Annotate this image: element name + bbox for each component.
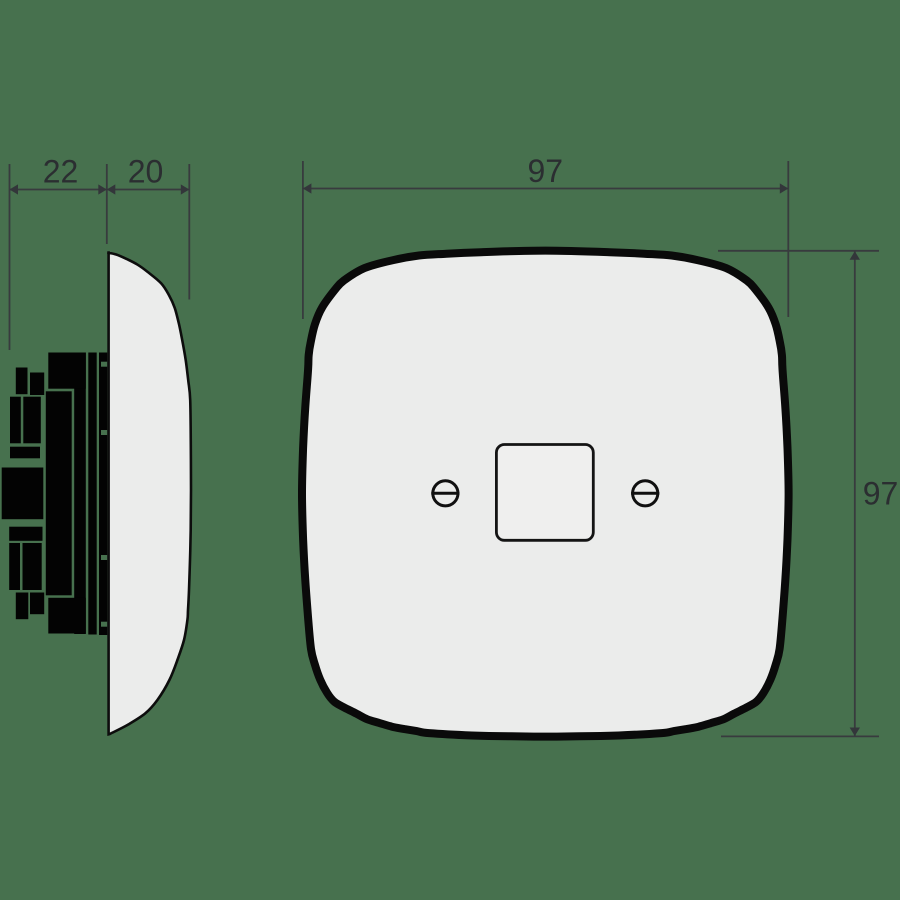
- svg-text:20: 20: [128, 154, 164, 190]
- svg-text:97: 97: [528, 153, 564, 189]
- svg-text:97: 97: [863, 476, 899, 512]
- svg-text:22: 22: [43, 154, 79, 190]
